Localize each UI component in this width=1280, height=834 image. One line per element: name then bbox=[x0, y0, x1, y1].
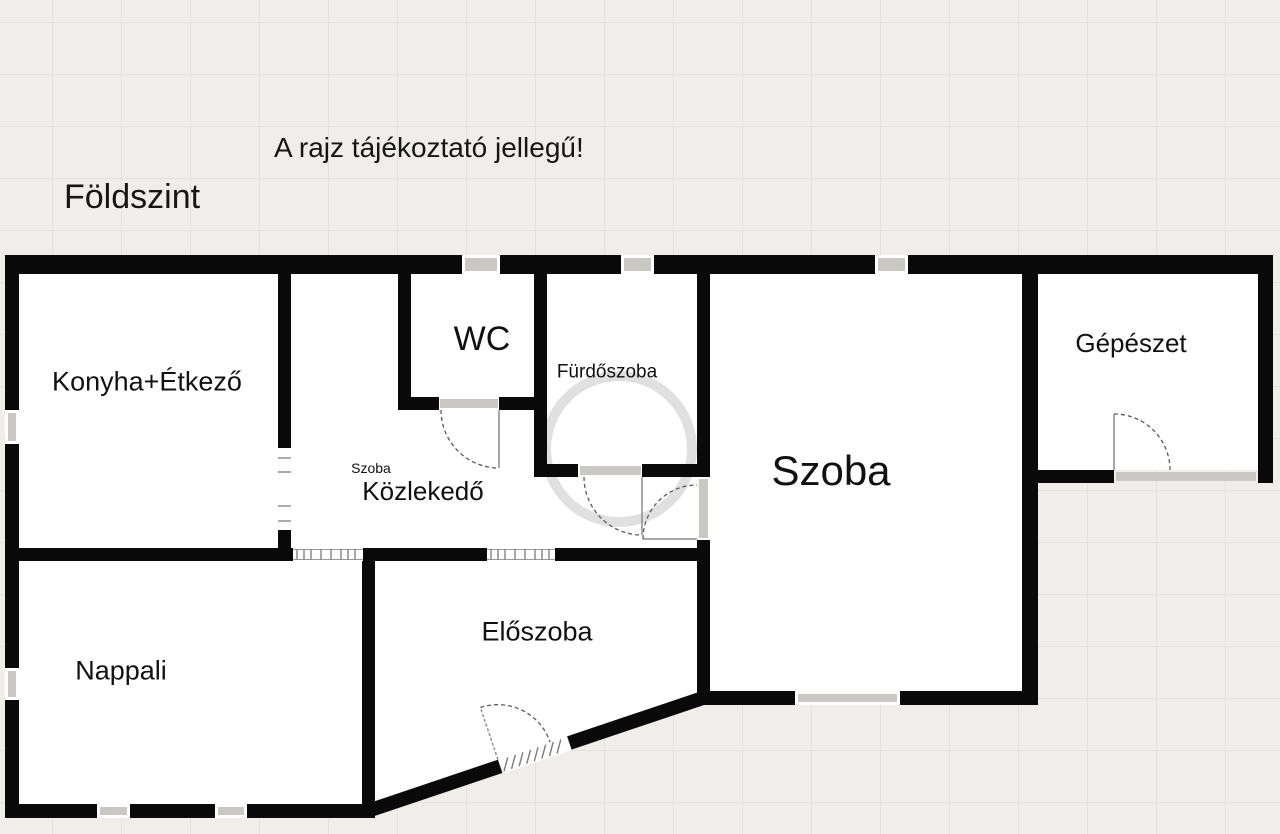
wc-door-threshold bbox=[440, 399, 498, 408]
floorplan-canvas: A rajz tájékoztató jellegű! Földszint bbox=[0, 0, 1280, 834]
room-label-szoba: Szoba bbox=[771, 450, 890, 492]
fill-eloszoba bbox=[362, 561, 710, 812]
floorplan-drawing bbox=[0, 0, 1280, 834]
room-label-nappali: Nappali bbox=[75, 658, 167, 685]
window-nappali-left bbox=[5, 668, 19, 700]
wall-gepeszet-bottom bbox=[1022, 470, 1114, 483]
wall-furdo-bottom-right bbox=[642, 464, 697, 477]
wall-nappali-right bbox=[362, 561, 375, 804]
room-label-konyha: Konyha+Étkező bbox=[52, 369, 242, 396]
wall-nappali-bottom bbox=[5, 804, 375, 818]
wall-konyha-right-upper bbox=[278, 255, 291, 448]
wall-furdo-szoba-upper bbox=[697, 255, 710, 477]
window-szoba-top bbox=[875, 255, 908, 274]
wall-furdo-szoba-lower bbox=[697, 540, 710, 705]
room-label-eloszoba: Előszoba bbox=[481, 619, 592, 646]
gepeszet-door-threshold bbox=[1116, 472, 1256, 481]
room-label-szoba-small: Szoba bbox=[351, 461, 391, 475]
wall-gepeszet-right bbox=[1258, 255, 1273, 483]
window-wc-top bbox=[462, 255, 500, 274]
wall-wc-furdo bbox=[534, 255, 547, 477]
window-nappali-bottom-2 bbox=[215, 804, 247, 818]
wall-wc-left bbox=[398, 255, 411, 410]
wall-left bbox=[5, 255, 19, 818]
furdo-door-threshold bbox=[580, 466, 641, 475]
room-label-kozlekedo: Közlekedő bbox=[362, 478, 483, 504]
wall-furdo-bottom-left bbox=[534, 464, 578, 477]
room-fills bbox=[19, 274, 1258, 812]
konyha-opening bbox=[278, 448, 291, 530]
wall-mid-horizontal-2 bbox=[363, 548, 487, 561]
window-nappali-bottom-1 bbox=[97, 804, 130, 818]
wall-wc-bottom-left bbox=[398, 397, 439, 410]
room-label-gepeszet: Gépészet bbox=[1075, 330, 1186, 356]
room-label-furdoszoba: Fürdőszoba bbox=[557, 363, 657, 382]
fill-nappali bbox=[19, 561, 362, 804]
szoba-door-threshold bbox=[699, 479, 708, 538]
wall-mid-horizontal-3 bbox=[555, 548, 710, 561]
konyha-opening-gap bbox=[278, 448, 291, 530]
sliding-door-nappali bbox=[293, 548, 363, 561]
sliding-door-eloszoba bbox=[487, 548, 555, 561]
room-label-wc: WC bbox=[454, 322, 511, 356]
window-szoba-bottom bbox=[795, 691, 900, 705]
window-furdo-top bbox=[621, 255, 654, 274]
wall-mid-horizontal-1 bbox=[5, 548, 293, 561]
window-konyha-left bbox=[5, 410, 19, 444]
fill-gepeszet bbox=[1038, 274, 1258, 470]
